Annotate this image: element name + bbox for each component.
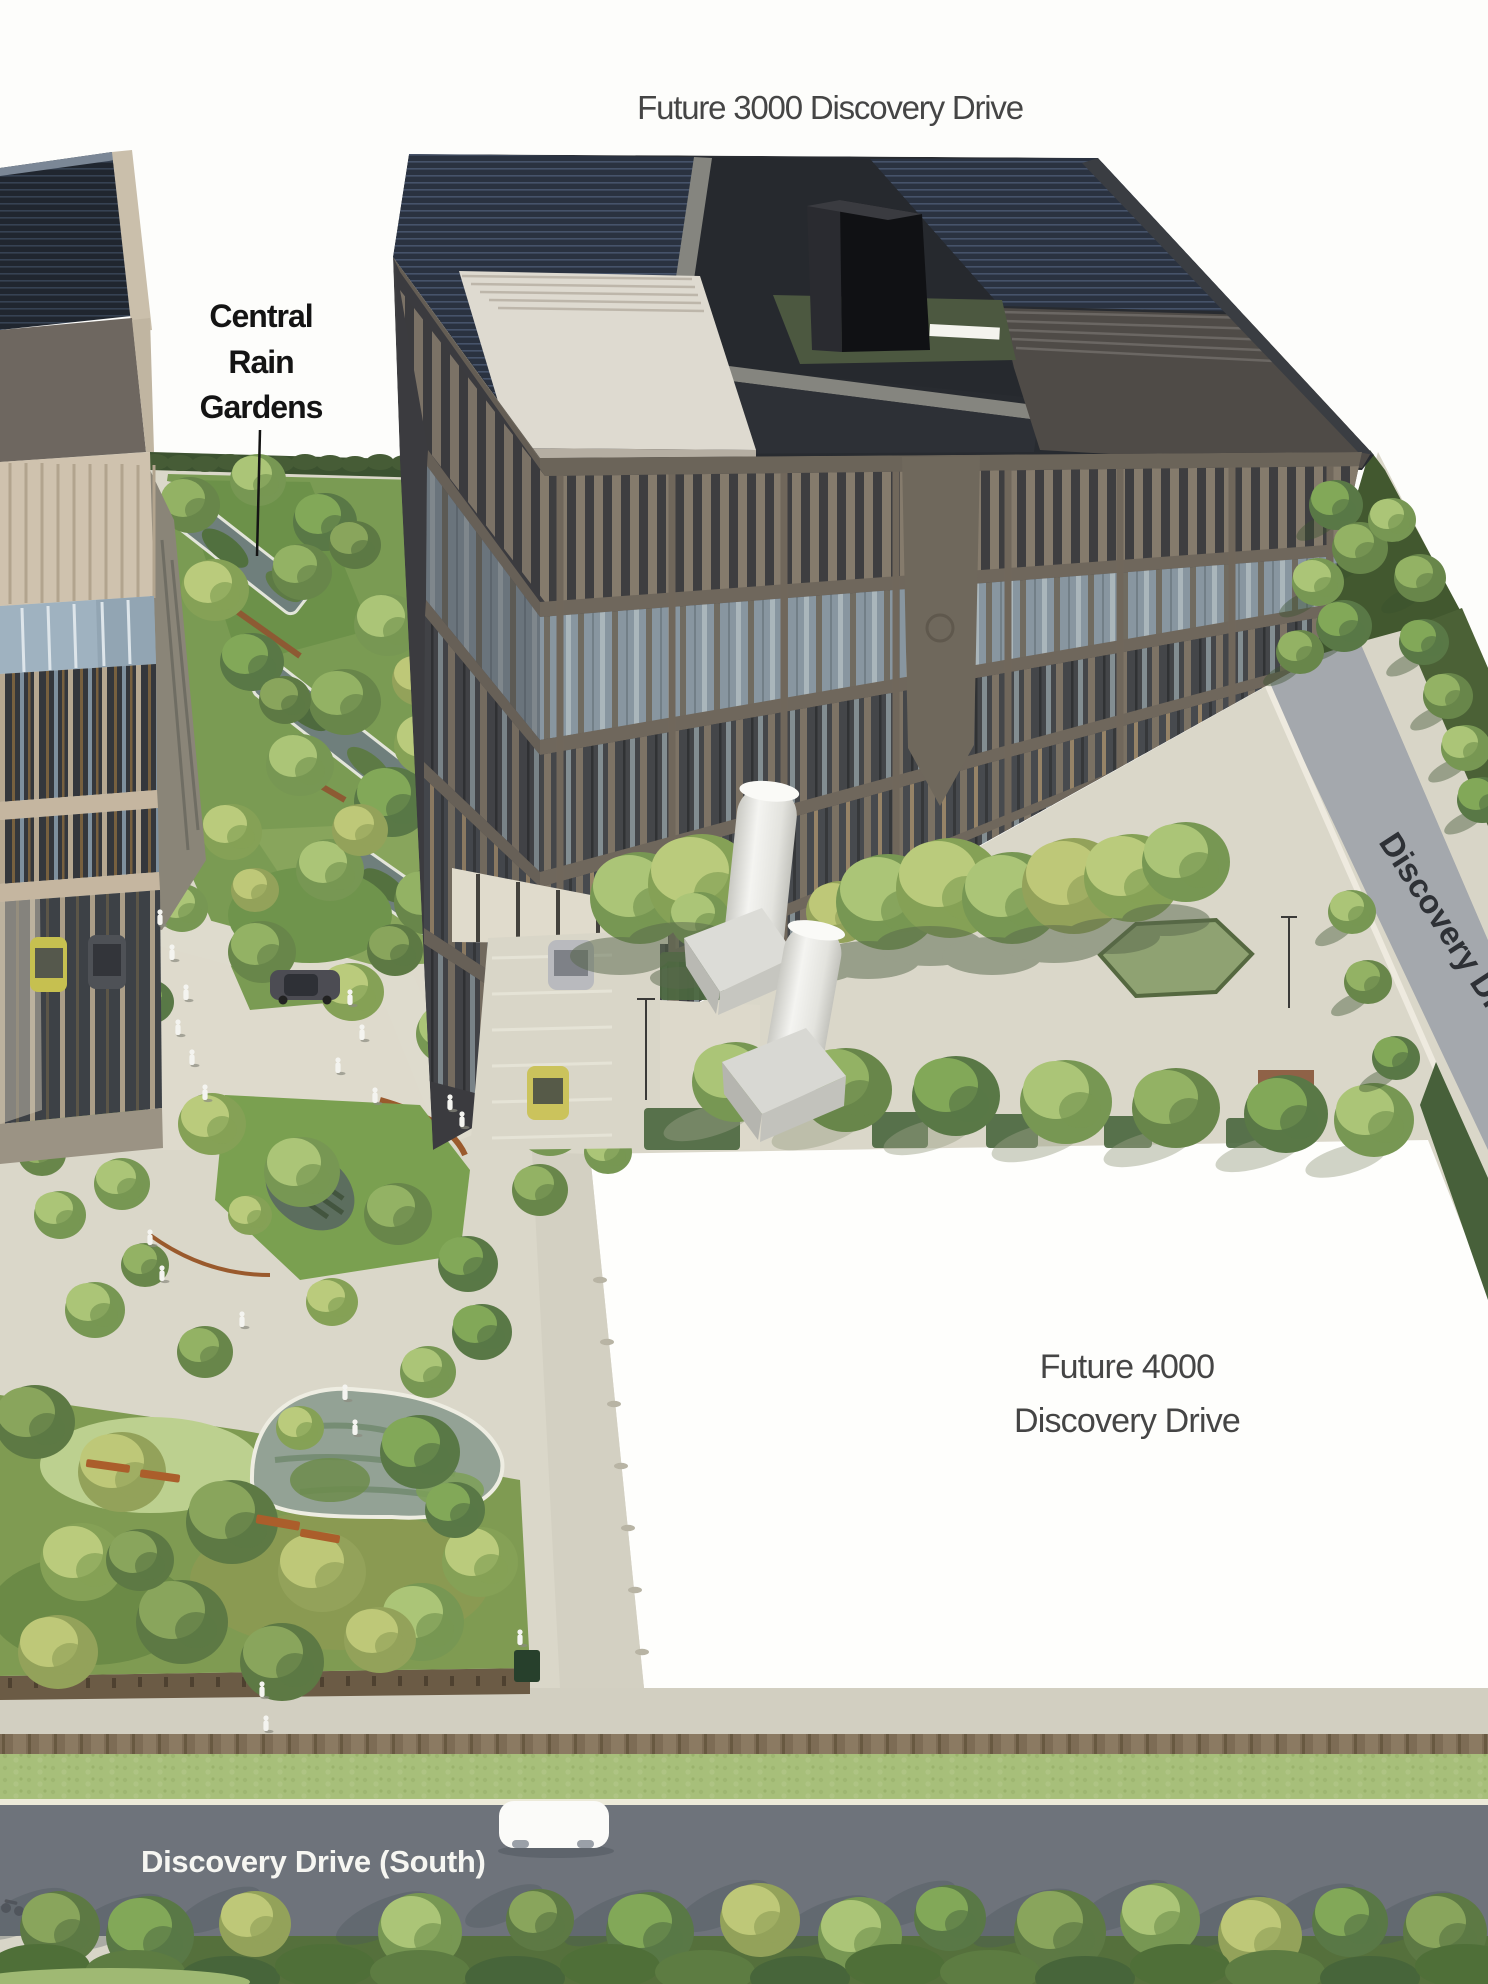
svg-text:Discovery Drive (South): Discovery Drive (South) — [141, 1844, 486, 1879]
svg-text:Future 4000: Future 4000 — [1040, 1348, 1215, 1386]
svg-text:Rain: Rain — [228, 344, 293, 380]
svg-text:Discovery Drive: Discovery Drive — [1014, 1402, 1240, 1440]
svg-text:Future 3000 Discovery Drive: Future 3000 Discovery Drive — [637, 89, 1023, 126]
svg-text:Gardens: Gardens — [200, 389, 323, 425]
svg-text:Central: Central — [209, 298, 312, 334]
